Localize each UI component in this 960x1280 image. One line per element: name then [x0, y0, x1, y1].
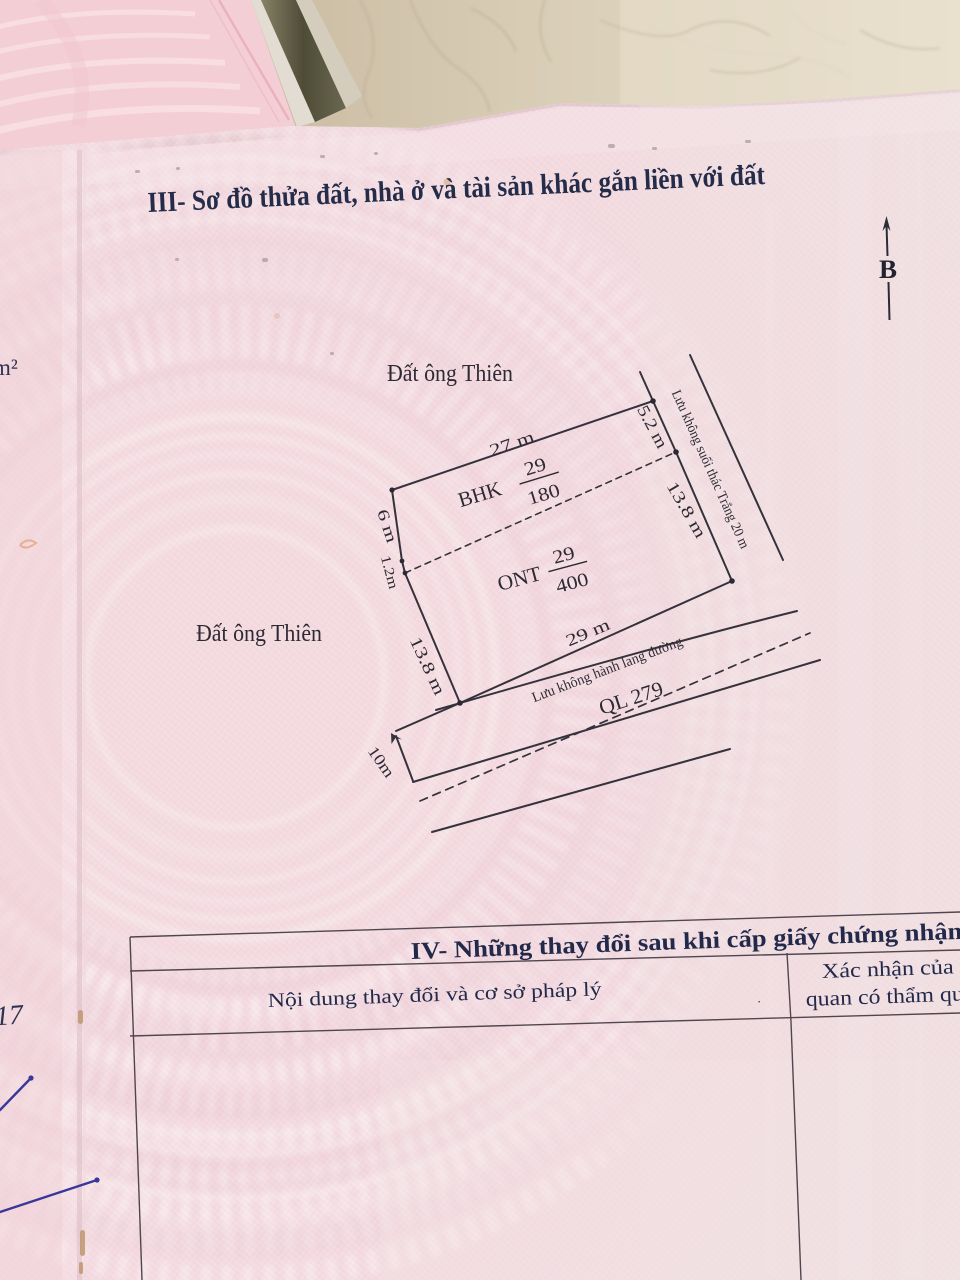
svg-text:B: B	[879, 255, 897, 284]
svg-text:17: 17	[0, 999, 25, 1032]
svg-text:Đất ông Thiên: Đất ông Thiên	[387, 361, 513, 387]
svg-text:m²: m²	[0, 355, 18, 380]
svg-text:·: ·	[757, 994, 761, 1009]
svg-text:Đất ông Thiên: Đất ông Thiên	[196, 621, 322, 647]
svg-text:Xác nhận của: Xác nhận của	[821, 954, 955, 983]
